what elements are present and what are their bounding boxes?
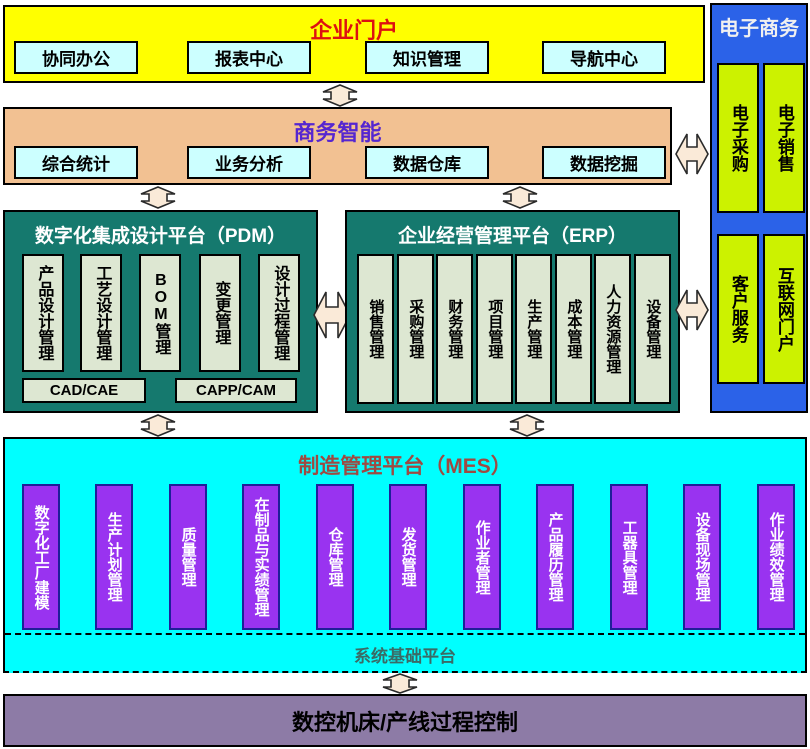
pdm-footer-capp-cam: CAPP/CAM: [175, 378, 297, 403]
erp-col-project: 项目管理: [476, 254, 513, 404]
mes-col-wip-performance: 在制品与实绩管理: [242, 484, 280, 630]
portal-item-report-center: 报表中心: [187, 41, 311, 74]
portal-item-nav-center: 导航中心: [542, 41, 666, 74]
architecture-diagram: 企业门户 协同办公 报表中心 知识管理 导航中心 商务智能 综合统计 业务分析 …: [0, 0, 810, 749]
mes-col-equipment-site: 设备现场管理: [683, 484, 721, 630]
pdm-col-product-design: 产品设计管理: [22, 254, 64, 372]
erp-col-hr: 人力资源管理: [594, 254, 631, 404]
erp-title: 企业经营管理平台（ERP）: [347, 212, 678, 248]
arrow-erp-mes-icon: [509, 414, 545, 437]
enterprise-portal-panel: 企业门户 协同办公 报表中心 知识管理 导航中心: [3, 5, 705, 83]
erp-col-finance: 财务管理: [436, 254, 473, 404]
ec-item-internet-portal: 互联网门户: [763, 234, 805, 384]
arrow-mes-control-icon: [382, 673, 418, 694]
pdm-col-change-mgmt: 变更管理: [199, 254, 241, 372]
foundation-divider: [5, 633, 805, 635]
mes-col-digital-factory-modeling: 数字化工厂建模: [22, 484, 60, 630]
arrow-bi-erp-icon: [502, 186, 538, 209]
ecommerce-title: 电子商务: [712, 5, 806, 41]
mes-col-quality-mgmt: 质量管理: [169, 484, 207, 630]
pdm-col-design-process: 设计过程管理: [258, 254, 300, 372]
arrow-erp-ecommerce-icon: [675, 288, 709, 332]
mes-col-tooling-mgmt: 工器具管理: [610, 484, 648, 630]
erp-platform-panel: 企业经营管理平台（ERP） 销售管理 采购管理 财务管理 项目管理 生产管理 成…: [345, 210, 680, 413]
portal-item-knowledge-mgmt: 知识管理: [365, 41, 489, 74]
pdm-footer-cad-cae: CAD/CAE: [22, 378, 146, 403]
pdm-col-bom-mgmt: BOM管理: [139, 254, 181, 372]
erp-col-production: 生产管理: [515, 254, 552, 404]
ec-item-e-sales: 电子销售: [763, 63, 805, 213]
pdm-platform-panel: 数字化集成设计平台（PDM） 产品设计管理 工艺设计管理 BOM管理 变更管理 …: [3, 210, 318, 413]
mes-col-work-performance: 作业绩效管理: [757, 484, 795, 630]
arrow-bi-ecommerce-icon: [675, 132, 709, 176]
pdm-col-process-design: 工艺设计管理: [80, 254, 122, 372]
mes-col-production-planning: 生产计划管理: [95, 484, 133, 630]
mes-col-warehouse-mgmt: 仓库管理: [316, 484, 354, 630]
ec-item-customer-service: 客户服务: [717, 234, 759, 384]
system-foundation-label: 系统基础平台: [5, 642, 805, 667]
mes-col-product-history: 产品履历管理: [536, 484, 574, 630]
mes-col-shipping-mgmt: 发货管理: [389, 484, 427, 630]
business-intelligence-title: 商务智能: [5, 109, 670, 147]
mes-col-operator-mgmt: 作业者管理: [463, 484, 501, 630]
mes-title: 制造管理平台（MES）: [5, 439, 805, 480]
bi-item-analysis: 业务分析: [187, 146, 311, 179]
bi-item-data-warehouse: 数据仓库: [365, 146, 489, 179]
arrow-pdm-mes-icon: [140, 414, 176, 437]
erp-col-sales: 销售管理: [357, 254, 394, 404]
portal-item-collab-office: 协同办公: [14, 41, 138, 74]
process-control-panel: 数控机床/产线过程控制: [3, 694, 807, 747]
process-control-title: 数控机床/产线过程控制: [5, 705, 805, 737]
bi-item-statistics: 综合统计: [14, 146, 138, 179]
erp-col-cost: 成本管理: [555, 254, 592, 404]
erp-col-purchasing: 采购管理: [397, 254, 434, 404]
pdm-title: 数字化集成设计平台（PDM）: [5, 212, 316, 248]
enterprise-portal-title: 企业门户: [5, 7, 703, 45]
arrow-portal-bi-icon: [322, 84, 358, 107]
mes-platform-panel: 制造管理平台（MES） 数字化工厂建模 生产计划管理 质量管理 在制品与实绩管理…: [3, 437, 807, 673]
arrow-bi-pdm-icon: [140, 186, 176, 209]
ec-item-e-procurement: 电子采购: [717, 63, 759, 213]
bi-item-data-mining: 数据挖掘: [542, 146, 666, 179]
erp-col-equipment: 设备管理: [634, 254, 671, 404]
ecommerce-panel: 电子商务 电子采购 电子销售 客户服务 互联网门户: [710, 3, 808, 413]
business-intelligence-panel: 商务智能 综合统计 业务分析 数据仓库 数据挖掘: [3, 107, 672, 185]
